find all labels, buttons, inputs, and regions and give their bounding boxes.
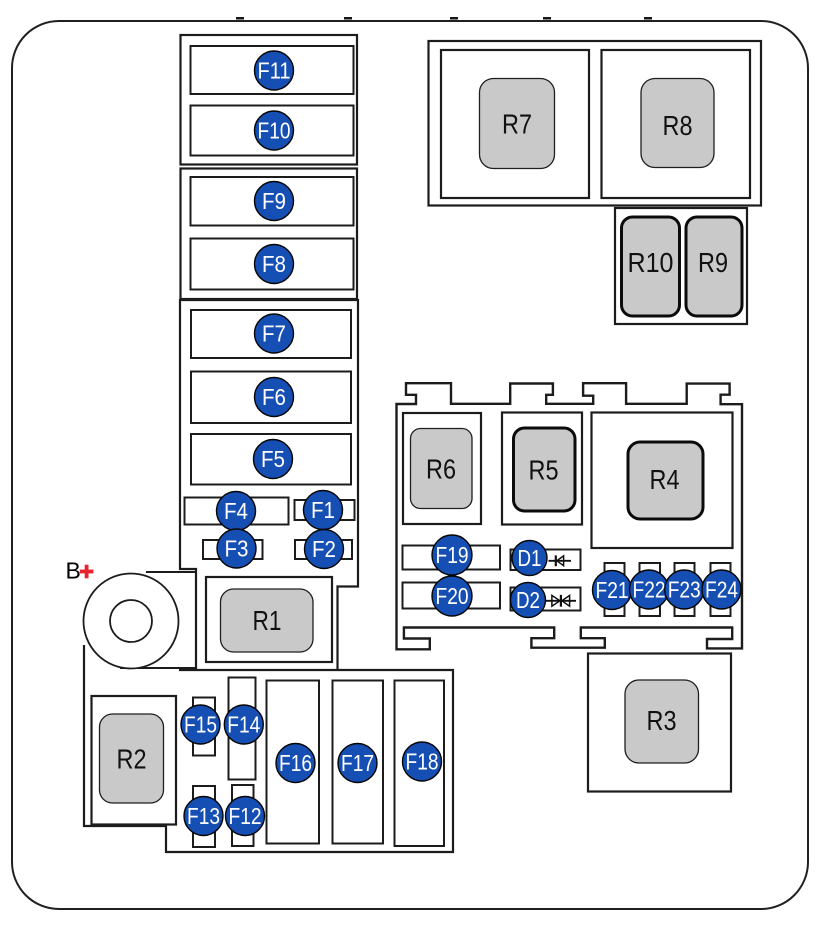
svg-text:F22: F22	[633, 577, 666, 603]
svg-text:F6: F6	[262, 384, 286, 410]
svg-text:F20: F20	[436, 583, 469, 609]
svg-text:F12: F12	[229, 803, 262, 829]
svg-text:R6: R6	[426, 454, 456, 485]
svg-text:R1: R1	[253, 605, 282, 636]
svg-text:F8: F8	[262, 251, 286, 277]
svg-text:F7: F7	[262, 321, 286, 347]
svg-text:R7: R7	[502, 109, 532, 140]
svg-text:F3: F3	[225, 536, 249, 562]
svg-text:F9: F9	[262, 188, 286, 214]
svg-text:F24: F24	[705, 577, 738, 603]
svg-text:F17: F17	[341, 750, 374, 776]
svg-text:F10: F10	[258, 118, 291, 144]
svg-text:R5: R5	[529, 455, 559, 486]
svg-text:F15: F15	[184, 712, 217, 738]
svg-text:R4: R4	[650, 464, 680, 495]
svg-text:F16: F16	[279, 750, 312, 776]
svg-text:F23: F23	[668, 577, 701, 603]
svg-text:R8: R8	[663, 110, 693, 141]
svg-text:F18: F18	[406, 749, 439, 775]
svg-text:F1: F1	[311, 497, 335, 523]
svg-text:D2: D2	[516, 587, 540, 613]
svg-text:F4: F4	[224, 498, 248, 524]
svg-text:F19: F19	[436, 542, 469, 568]
svg-text:F11: F11	[258, 58, 291, 84]
svg-text:R2: R2	[117, 744, 147, 775]
svg-text:R9: R9	[698, 247, 728, 278]
svg-text:F13: F13	[187, 803, 220, 829]
svg-text:B: B	[66, 558, 81, 584]
svg-text:R3: R3	[647, 705, 677, 736]
svg-text:F21: F21	[596, 577, 629, 603]
svg-text:F2: F2	[312, 536, 336, 562]
svg-text:F14: F14	[227, 712, 260, 738]
svg-text:D1: D1	[518, 545, 542, 571]
svg-text:F5: F5	[261, 446, 285, 472]
svg-text:R10: R10	[628, 247, 674, 278]
